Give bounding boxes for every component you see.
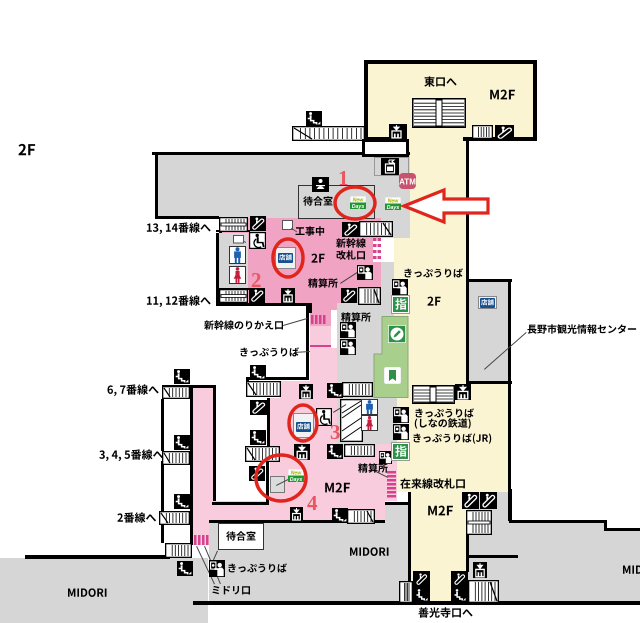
svg-text:Days: Days — [387, 205, 400, 210]
